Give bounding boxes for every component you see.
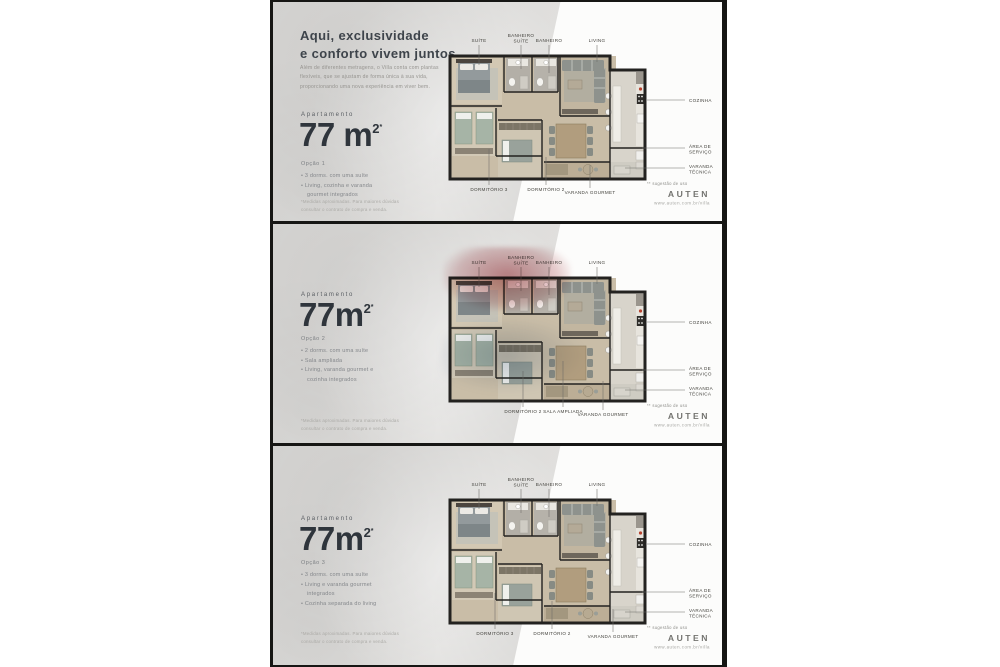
area-footnote-mark: * <box>371 304 374 311</box>
area-number: 77m <box>299 296 364 333</box>
feature-item: Cozinha separada do living <box>301 600 377 610</box>
label-technical-balcony: VARANDA <box>689 386 714 391</box>
label-suite: SUÍTE <box>471 259 486 265</box>
label-kitchen: COZINHA <box>689 320 712 325</box>
label-bottom-right: VARANDA GOURMET <box>588 634 639 639</box>
feature-item: 2 dorms. com uma suíte <box>301 347 377 357</box>
label-technical-balcony: VARANDA <box>689 608 714 613</box>
label-service-area: ÁREA DE <box>689 587 711 593</box>
area-number: 77 m <box>299 116 372 153</box>
usage-note: ** sugestão de uso <box>647 403 688 408</box>
label-bottom-left: DORMITÓRIO 3 <box>476 630 513 636</box>
legal-footnote: *Medidas aproximadas. Para maiores dúvid… <box>301 198 399 215</box>
panel-option-1: Aqui, exclusividade e conforto vivem jun… <box>273 2 722 221</box>
feature-item: Living, varanda gourmet e cozinha integr… <box>301 366 377 385</box>
area-exponent: 2 <box>364 301 371 316</box>
label-service-area: ÁREA DE <box>689 143 711 149</box>
label-bottom-mid: DORMITÓRIO 2 <box>533 630 570 636</box>
label-bathroom: BANHEIRO <box>536 482 563 487</box>
area-number: 77m <box>299 520 364 557</box>
floor-plan: SUÍTE BANHEIRO SUÍTE BANHEIRO LIVING COZ… <box>441 473 722 650</box>
label-suite: SUÍTE <box>471 37 486 43</box>
feature-item: Living e varanda gourmet integrados <box>301 581 377 600</box>
website-url: www.auten.com.br/villa <box>654 423 710 428</box>
label-kitchen: COZINHA <box>689 98 712 103</box>
area-value: 77m2* <box>299 296 374 334</box>
intro-paragraph: Além de diferentes metragens, o Villa co… <box>300 64 454 92</box>
option-label: Opção 3 <box>301 560 325 566</box>
auten-logo: AUTEN <box>668 633 710 643</box>
label-bathroom: BANHEIRO <box>536 260 563 265</box>
label-service-area: SERVIÇO <box>689 150 712 155</box>
label-service-area: SERVIÇO <box>689 372 712 377</box>
label-bathroom-suite: BANHEIRO <box>508 33 535 38</box>
label-bottom-left: DORMITÓRIO 3 <box>470 186 507 192</box>
panel-option-2: Apartamento 77m2* Opção 2 2 dorms. com u… <box>273 221 722 443</box>
feature-item: 3 dorms. com uma suíte <box>301 172 377 182</box>
label-bottom-mid: DORMITÓRIO 2 <box>527 186 564 192</box>
label-living: LIVING <box>589 482 606 487</box>
poster-canvas: Aqui, exclusividade e conforto vivem jun… <box>0 0 1000 667</box>
area-footnote-mark: * <box>371 528 374 535</box>
feature-item: Sala ampliada <box>301 357 377 367</box>
option-label: Opção 2 <box>301 336 325 342</box>
headline: Aqui, exclusividade e conforto vivem jun… <box>300 27 460 64</box>
auten-logo: AUTEN <box>668 189 710 199</box>
label-technical-balcony: TÉCNICA <box>689 613 712 619</box>
area-value: 77m2* <box>299 520 374 558</box>
label-technical-balcony: TÉCNICA <box>689 169 712 175</box>
label-bottom-right: VARANDA GOURMET <box>578 412 629 417</box>
area-footnote-mark: * <box>379 124 382 131</box>
label-bathroom-suite: SUÍTE <box>513 260 528 266</box>
label-bathroom: BANHEIRO <box>536 38 563 43</box>
option-label: Opção 1 <box>301 161 325 167</box>
floor-plan: SUÍTE BANHEIRO SUÍTE BANHEIRO LIVING COZ… <box>441 29 722 206</box>
label-bottom-right: VARANDA GOURMET <box>565 190 616 195</box>
label-service-area: SERVIÇO <box>689 594 712 599</box>
label-living: LIVING <box>589 260 606 265</box>
label-kitchen: COZINHA <box>689 542 712 547</box>
legal-footnote: *Medidas aproximadas. Para maiores dúvid… <box>301 630 399 647</box>
feature-list: 3 dorms. com uma suíte Living, cozinha e… <box>301 172 377 201</box>
usage-note: ** sugestão de uso <box>647 625 688 630</box>
label-bathroom-suite: SUÍTE <box>513 38 528 44</box>
panel-option-3: Apartamento 77m2* Opção 3 3 dorms. com u… <box>273 443 722 665</box>
legal-footnote: *Medidas aproximadas. Para maiores dúvid… <box>301 417 399 434</box>
feature-list: 2 dorms. com uma suíte Sala ampliada Liv… <box>301 347 377 386</box>
label-living: LIVING <box>589 38 606 43</box>
label-bathroom-suite: BANHEIRO <box>508 255 535 260</box>
label-technical-balcony: TÉCNICA <box>689 391 712 397</box>
usage-note: ** sugestão de uso <box>647 181 688 186</box>
website-url: www.auten.com.br/villa <box>654 645 710 650</box>
feature-list: 3 dorms. com uma suíte Living e varanda … <box>301 571 377 610</box>
label-bottom-left: DORMITÓRIO 2 <box>504 408 541 414</box>
auten-logo: AUTEN <box>668 411 710 421</box>
label-technical-balcony: VARANDA <box>689 164 714 169</box>
label-suite: SUÍTE <box>471 481 486 487</box>
label-bathroom-suite: BANHEIRO <box>508 477 535 482</box>
label-service-area: ÁREA DE <box>689 365 711 371</box>
area-value: 77 m2* <box>299 116 382 154</box>
website-url: www.auten.com.br/villa <box>654 201 710 206</box>
feature-item: 3 dorms. com uma suíte <box>301 571 377 581</box>
floor-plan: SUÍTE BANHEIRO SUÍTE BANHEIRO LIVING COZ… <box>441 251 722 428</box>
label-bathroom-suite: SUÍTE <box>513 482 528 488</box>
panel-stack: Aqui, exclusividade e conforto vivem jun… <box>270 0 727 667</box>
area-exponent: 2 <box>364 525 371 540</box>
